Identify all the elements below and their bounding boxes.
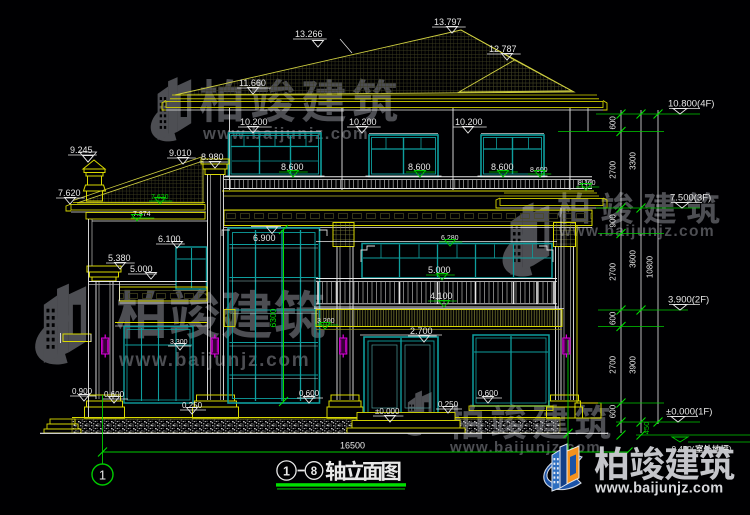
svg-text:10800: 10800 — [646, 255, 655, 278]
svg-text:900: 900 — [609, 214, 618, 228]
svg-text:13.797: 13.797 — [434, 17, 462, 27]
svg-text:4.100: 4.100 — [430, 291, 453, 301]
svg-text:9.010: 9.010 — [169, 148, 192, 158]
svg-text:3300: 3300 — [629, 152, 638, 170]
svg-text:7.620: 7.620 — [58, 188, 81, 198]
svg-text:13.266: 13.266 — [295, 29, 323, 39]
svg-text:2700: 2700 — [609, 355, 618, 373]
svg-text:1: 1 — [99, 468, 106, 483]
svg-text:3600: 3600 — [629, 250, 638, 268]
svg-text:8.980: 8.980 — [201, 152, 224, 162]
svg-text:8: 8 — [311, 466, 318, 478]
svg-text:600: 600 — [609, 311, 618, 325]
svg-text:7.500(3F): 7.500(3F) — [670, 193, 711, 204]
svg-text:3.900(2F): 3.900(2F) — [668, 295, 709, 306]
svg-text:10.200: 10.200 — [240, 117, 268, 127]
svg-text:www.baijunjz.com: www.baijunjz.com — [594, 481, 723, 497]
svg-text:11.660: 11.660 — [239, 78, 266, 88]
svg-text:12.787: 12.787 — [489, 44, 517, 54]
svg-text:6.900: 6.900 — [253, 233, 276, 243]
svg-text:6300: 6300 — [268, 308, 278, 327]
svg-text:0.250: 0.250 — [182, 401, 203, 410]
svg-text:10.200: 10.200 — [349, 117, 377, 127]
svg-text:±0.000: ±0.000 — [375, 407, 400, 416]
svg-text:0.250: 0.250 — [438, 400, 459, 409]
svg-text:6.100: 6.100 — [158, 234, 181, 244]
svg-text:3.300: 3.300 — [170, 339, 188, 346]
svg-text:www.baijunjz.com: www.baijunjz.com — [202, 125, 369, 143]
svg-text:10.200: 10.200 — [455, 117, 483, 127]
svg-text:5.380: 5.380 — [108, 253, 131, 263]
svg-text:3900: 3900 — [629, 356, 638, 374]
svg-text:1: 1 — [283, 465, 290, 479]
svg-text:2700: 2700 — [609, 160, 618, 178]
svg-text:600: 600 — [609, 404, 618, 418]
svg-text:10.800(4F): 10.800(4F) — [668, 99, 714, 110]
svg-text:6.280: 6.280 — [441, 235, 459, 242]
svg-text:0.600: 0.600 — [104, 390, 125, 399]
svg-text:2.700: 2.700 — [410, 326, 433, 336]
svg-text:450: 450 — [642, 422, 651, 435]
svg-text:16500: 16500 — [340, 441, 365, 451]
svg-text:3.200: 3.200 — [317, 318, 335, 325]
svg-text:600: 600 — [609, 116, 618, 130]
svg-text:2700: 2700 — [609, 262, 618, 280]
svg-text:±0.000(1F): ±0.000(1F) — [666, 407, 712, 418]
